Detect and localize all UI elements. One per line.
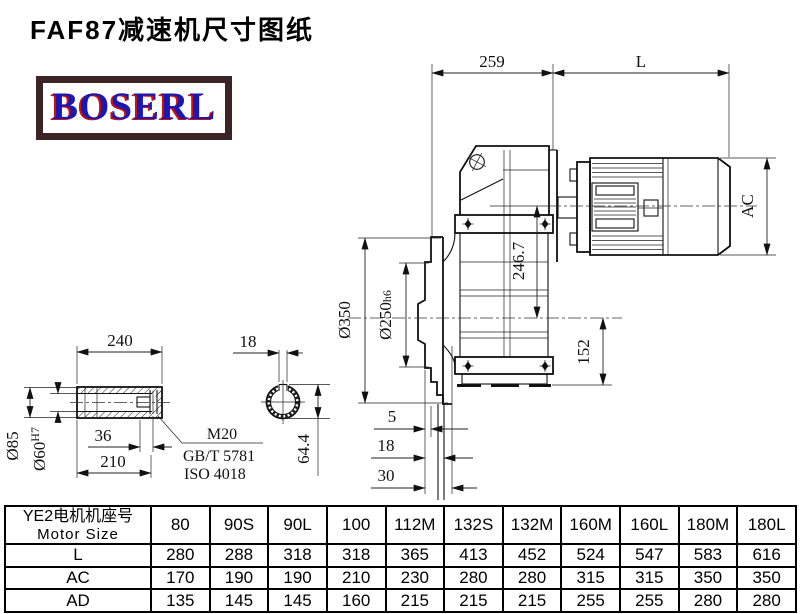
cell: 215 bbox=[386, 589, 445, 612]
row-label: AC bbox=[5, 567, 151, 590]
cell: 452 bbox=[503, 544, 562, 567]
cell: 365 bbox=[386, 544, 445, 567]
dim-259: 259 bbox=[479, 52, 505, 71]
col-header: 90L bbox=[268, 506, 327, 544]
dim-60-fit: H7 bbox=[28, 427, 42, 442]
cell: 315 bbox=[620, 567, 679, 590]
row-label: L bbox=[5, 544, 151, 567]
cell: 135 bbox=[151, 589, 210, 612]
table-row-L: L 280 288 318 318 365 413 452 524 547 58… bbox=[5, 544, 796, 567]
eyebolt-icon bbox=[463, 148, 490, 175]
dim-60: Ø60 bbox=[30, 442, 49, 471]
col-header: 132M bbox=[503, 506, 562, 544]
cell: 318 bbox=[268, 544, 327, 567]
header-en: Motor Size bbox=[6, 526, 150, 543]
cell: 255 bbox=[561, 589, 620, 612]
col-header: 100 bbox=[327, 506, 386, 544]
table-header-motor-size: YE2电机机座号 Motor Size bbox=[5, 506, 151, 544]
bolt-standard-gb: GB/T 5781 bbox=[183, 448, 255, 465]
dim-85: Ø85 bbox=[3, 431, 22, 460]
cell: 230 bbox=[386, 567, 445, 590]
dim-246-7: 246.7 bbox=[509, 241, 528, 280]
col-header: 160M bbox=[561, 506, 620, 544]
dim-210: 210 bbox=[100, 452, 126, 471]
output-flange bbox=[418, 233, 455, 500]
dim-AC: AC bbox=[738, 194, 757, 218]
cell: 215 bbox=[444, 589, 503, 612]
main-view: 259 L bbox=[335, 52, 776, 500]
cell: 524 bbox=[561, 544, 620, 567]
cell: 280 bbox=[503, 567, 562, 590]
dim-250h6: Ø250h6 bbox=[376, 290, 395, 340]
gearbox-housing bbox=[455, 146, 557, 386]
cell: 280 bbox=[151, 544, 210, 567]
col-header: 132S bbox=[444, 506, 503, 544]
cell: 318 bbox=[327, 544, 386, 567]
top-dimensions: 259 L bbox=[432, 52, 729, 238]
dimension-drawing: 259 L bbox=[0, 0, 800, 505]
page: FAF87减速机尺寸图纸 BOSERL bbox=[0, 0, 800, 614]
dim-64-4: 64.4 bbox=[294, 434, 313, 464]
cell: 170 bbox=[151, 567, 210, 590]
cell: 288 bbox=[210, 544, 269, 567]
motor-size-table: YE2电机机座号 Motor Size 80 90S 90L 100 112M … bbox=[4, 505, 797, 613]
dim-base-height-group: 152 bbox=[552, 318, 612, 385]
dim-152: 152 bbox=[574, 339, 593, 365]
col-header: 180L bbox=[737, 506, 796, 544]
sleeve-view: 240 Ø85 Ø60H7 36 bbox=[3, 331, 263, 483]
dim-60H7: Ø60H7 bbox=[28, 427, 49, 471]
cell: 190 bbox=[268, 567, 327, 590]
dim-250: Ø250 bbox=[376, 302, 395, 340]
cell: 616 bbox=[737, 544, 796, 567]
motor bbox=[548, 158, 757, 255]
cell: 350 bbox=[679, 567, 738, 590]
col-header: 90S bbox=[210, 506, 269, 544]
dim-240: 240 bbox=[107, 331, 133, 350]
row-label: AD bbox=[5, 589, 151, 612]
col-header: 180M bbox=[679, 506, 738, 544]
cell: 350 bbox=[737, 567, 796, 590]
dim-18: 18 bbox=[378, 436, 395, 455]
cell: 190 bbox=[210, 567, 269, 590]
col-header: 160L bbox=[620, 506, 679, 544]
cell: 145 bbox=[268, 589, 327, 612]
cell: 547 bbox=[620, 544, 679, 567]
col-header: 112M bbox=[386, 506, 445, 544]
dim-keydepth-group: 64.4 bbox=[284, 385, 330, 477]
dim-keywidth-group: 18 bbox=[233, 332, 303, 382]
cell: 210 bbox=[327, 567, 386, 590]
cell: 255 bbox=[620, 589, 679, 612]
cell: 160 bbox=[327, 589, 386, 612]
step-dimensions: 5 18 30 bbox=[371, 346, 477, 494]
dim-36-group: 36 bbox=[88, 416, 172, 452]
header-cn: YE2电机机座号 bbox=[6, 507, 150, 526]
bolt-label: M20 bbox=[207, 426, 237, 443]
cell: 413 bbox=[444, 544, 503, 567]
cell: 315 bbox=[561, 567, 620, 590]
dim-spigot-group: Ø250h6 bbox=[376, 263, 429, 367]
cell: 215 bbox=[503, 589, 562, 612]
cell: 280 bbox=[737, 589, 796, 612]
cell: 280 bbox=[679, 589, 738, 612]
cell: 583 bbox=[679, 544, 738, 567]
cell: 280 bbox=[444, 567, 503, 590]
table-header-row: YE2电机机座号 Motor Size 80 90S 90L 100 112M … bbox=[5, 506, 796, 544]
table-row-AD: AD 135 145 145 160 215 215 215 255 255 2… bbox=[5, 589, 796, 612]
dim-350: Ø350 bbox=[335, 301, 354, 339]
dim-250-fit: h6 bbox=[380, 290, 394, 302]
dim-AC-group: AC bbox=[720, 158, 776, 255]
dim-5: 5 bbox=[388, 407, 397, 426]
dim-L: L bbox=[636, 52, 646, 71]
bolt-callout: M20 GB/T 5781 ISO 4018 bbox=[158, 416, 263, 483]
dim-240-group: 240 bbox=[77, 331, 162, 384]
table-row-AC: AC 170 190 190 210 230 280 280 315 315 3… bbox=[5, 567, 796, 590]
cell: 145 bbox=[210, 589, 269, 612]
dim-60-group: Ø60H7 bbox=[28, 383, 77, 471]
dim-36: 36 bbox=[95, 426, 112, 445]
col-header: 80 bbox=[151, 506, 210, 544]
dim-30: 30 bbox=[378, 466, 395, 485]
bolt-standard-iso: ISO 4018 bbox=[184, 466, 246, 483]
dim-key-18: 18 bbox=[240, 332, 257, 351]
